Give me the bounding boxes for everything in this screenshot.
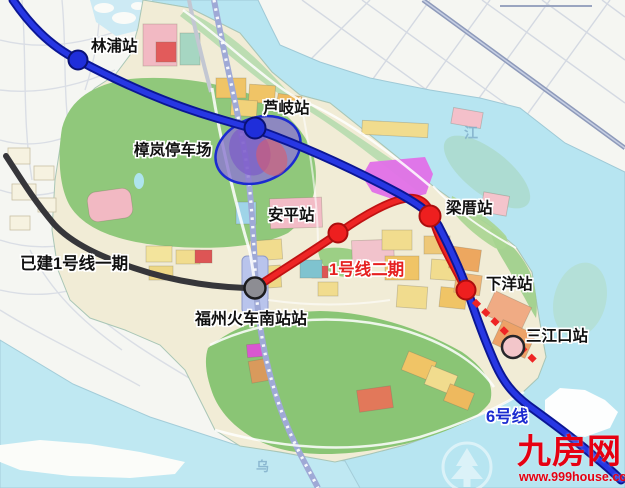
station-label-luqi: 芦岐站 [263, 101, 310, 117]
station-label-linpu: 林浦站 [91, 39, 138, 55]
line-label-line6: 6号线 [486, 409, 528, 426]
station-label-fuzhou-south: 福州火车南站站 [195, 312, 307, 328]
line-label-line1-phase2: 1号线二期 [329, 262, 404, 279]
geo-label-wulong-river: 乌 [256, 460, 269, 473]
metro-planning-map: 林浦站 芦岐站 樟岚停车场 安平站 梁厝站 已建1号线一期 福州火车南站站 1号… [0, 0, 625, 488]
station-label-anping: 安平站 [268, 208, 315, 224]
station-label-liangcuo: 梁厝站 [446, 201, 493, 217]
station-label-xiayang: 下洋站 [486, 277, 533, 293]
geo-label-min-river: 江 [464, 126, 478, 140]
facility-label-zhanglan-depot: 樟岚停车场 [134, 143, 212, 159]
watermark-site-name: 九房网 [517, 435, 622, 469]
watermark-site-url: www.999house.com [519, 471, 625, 484]
station-label-sanjiangkou: 三江口站 [526, 329, 588, 345]
line-label-line1-built: 已建1号线一期 [20, 256, 128, 273]
map-labels: 林浦站 芦岐站 樟岚停车场 安平站 梁厝站 已建1号线一期 福州火车南站站 1号… [0, 0, 625, 488]
